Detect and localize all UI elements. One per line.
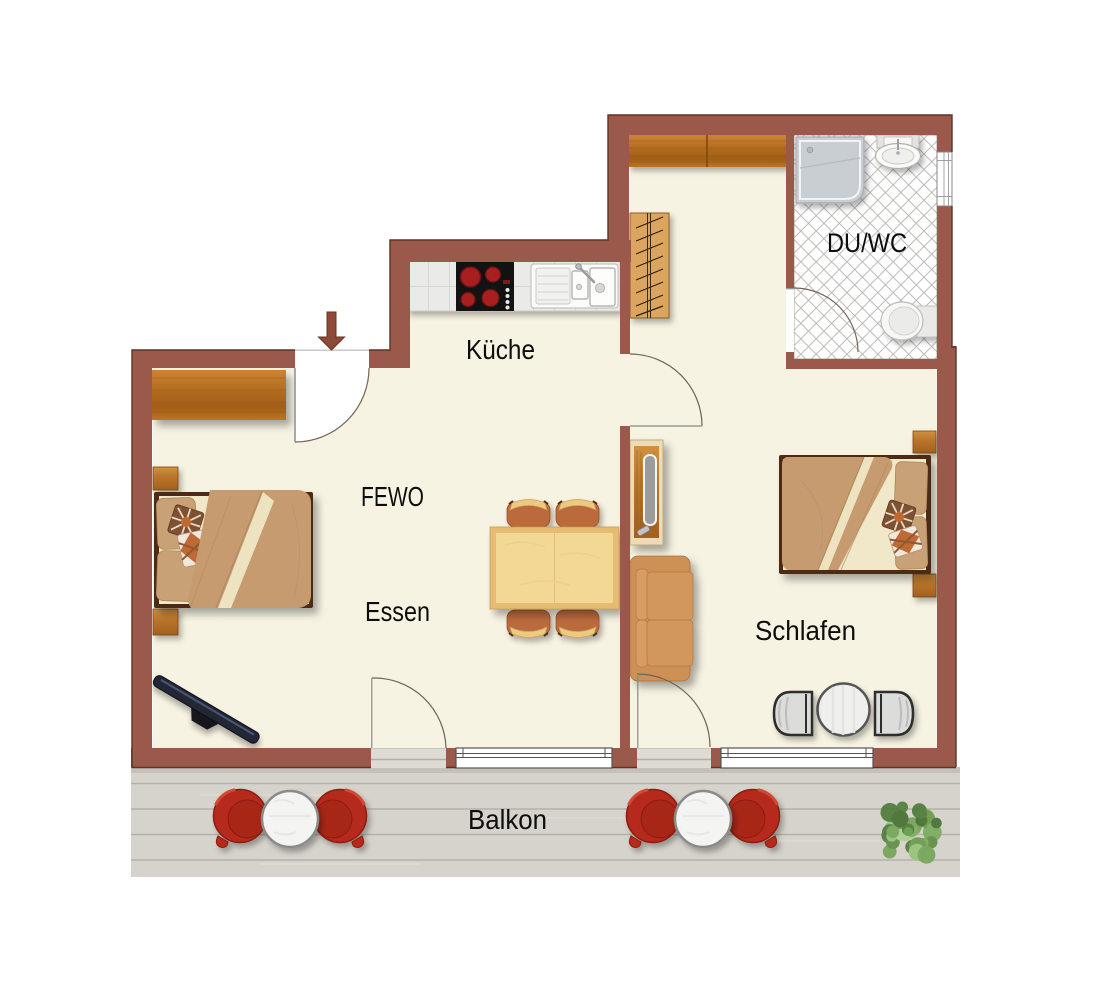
svg-text:Balkon: Balkon	[468, 804, 547, 835]
svg-text:FEWO: FEWO	[361, 481, 424, 512]
svg-text:Schlafen: Schlafen	[755, 615, 856, 646]
svg-text:DU/WC: DU/WC	[827, 228, 907, 258]
svg-text:Essen: Essen	[365, 596, 430, 627]
svg-text:Küche: Küche	[466, 334, 535, 365]
